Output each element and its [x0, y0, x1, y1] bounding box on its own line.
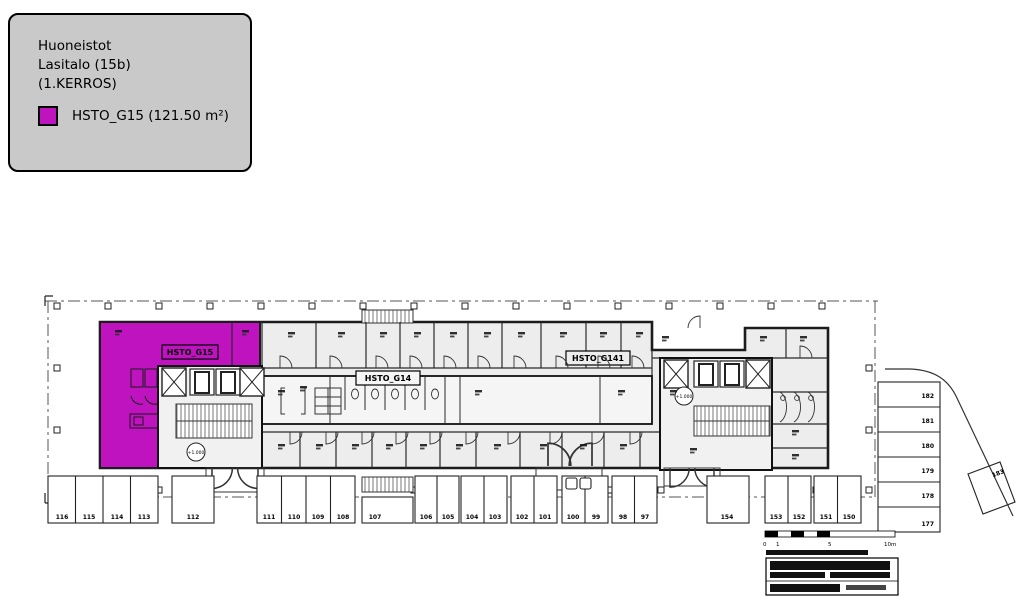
parking-number: 109: [312, 514, 325, 521]
parking-number: 108: [337, 514, 350, 521]
parking-number: 152: [793, 514, 806, 521]
level-mark: +1.000: [676, 394, 693, 400]
parking-number: 150: [843, 514, 856, 521]
floorplan-page: Huoneistot Lasitalo (15b) (1.KERROS) HST…: [0, 0, 1024, 597]
exterior-stair-bottom: [362, 477, 413, 492]
parking-number: 177: [921, 521, 934, 528]
scale-bar: 0 1 5 10m: [763, 531, 896, 548]
level-mark: +1.000: [188, 450, 205, 456]
parking-number: 105: [442, 514, 455, 521]
parking-number: 151: [820, 514, 833, 521]
parking-number: 114: [111, 514, 124, 521]
parking-stalls-bottom: [48, 476, 861, 523]
parking-number: 101: [539, 514, 552, 521]
scale-label: 10m: [884, 542, 896, 548]
floorplan-drawing: +1.000 +1.000 HSTO_G15: [0, 0, 1024, 597]
scale-label: 0: [763, 542, 767, 548]
parking-number: 100: [567, 514, 580, 521]
left-stair-core: +1.000: [158, 366, 264, 468]
parking-number: 97: [641, 514, 649, 521]
parking-number: 116: [56, 514, 69, 521]
parking-stalls-right: [878, 382, 940, 532]
parking-number: 178: [921, 493, 934, 500]
parking-number: 99: [592, 514, 600, 521]
parking-number: 181: [921, 418, 934, 425]
parking-number: 153: [770, 514, 783, 521]
parking-number: 182: [921, 393, 934, 400]
parking-number: 98: [619, 514, 627, 521]
parking-number: 112: [187, 514, 200, 521]
scale-label: 5: [828, 542, 832, 548]
unit-label-g15: HSTO_G15: [167, 348, 214, 357]
parking-number: 115: [83, 514, 96, 521]
parking-number: 180: [921, 443, 934, 450]
parking-number: 113: [138, 514, 151, 521]
parking-number: 102: [516, 514, 529, 521]
parking-number: 154: [721, 514, 734, 521]
scale-label: 1: [776, 542, 780, 548]
parking-number: 179: [921, 468, 934, 475]
unit-label-g14: HSTO_G14: [365, 374, 412, 383]
parking-number: 107: [369, 514, 382, 521]
charger-icon: [566, 478, 577, 489]
parking-number: 111: [263, 514, 276, 521]
parking-number: 104: [466, 514, 479, 521]
exterior-stair-top: [362, 310, 413, 323]
title-block: [766, 550, 898, 595]
parking-number: 110: [288, 514, 301, 521]
parking-number: 106: [420, 514, 433, 521]
charger-icon: [580, 478, 591, 489]
central-service-island: [262, 376, 652, 424]
parking-number: 103: [489, 514, 502, 521]
